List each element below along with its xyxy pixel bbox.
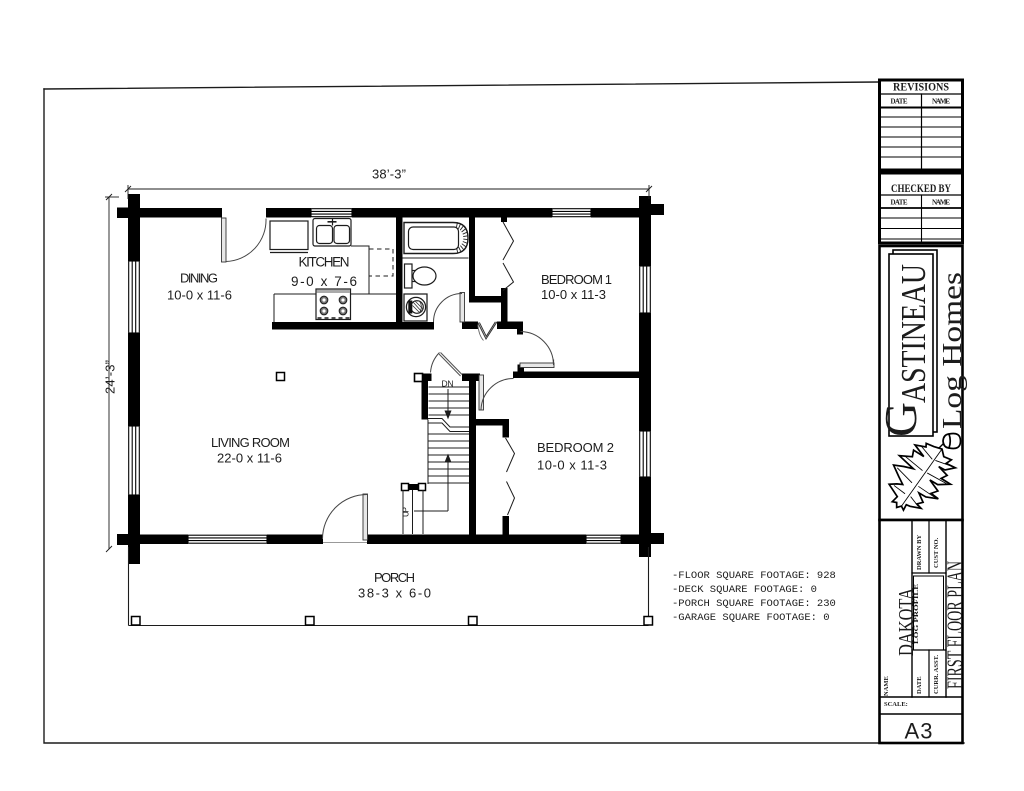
svg-text:DRAWN BY: DRAWN BY — [916, 534, 923, 570]
svg-text:10-0 x 11-3: 10-0 x 11-3 — [537, 458, 607, 473]
svg-text:NAME: NAME — [932, 199, 950, 207]
svg-text:DATE: DATE — [916, 676, 923, 694]
svg-text:DATE: DATE — [891, 199, 908, 207]
svg-text:LIVING ROOM: LIVING ROOM — [211, 435, 290, 450]
svg-text:-FLOOR SQUARE FOOTAGE: 928: -FLOOR SQUARE FOOTAGE: 928 — [672, 570, 836, 582]
svg-text:-GARAGE SQUARE FOOTAGE: 0: -GARAGE SQUARE FOOTAGE: 0 — [672, 612, 830, 624]
svg-text:G: G — [876, 402, 926, 437]
svg-text:FIRST FLOOR PLAN: FIRST FLOOR PLAN — [942, 561, 967, 689]
svg-text:22-0 x 11-6: 22-0 x 11-6 — [217, 451, 282, 466]
svg-text:DINING: DINING — [180, 271, 218, 286]
svg-text:NAME: NAME — [932, 98, 950, 106]
svg-text:DATE: DATE — [891, 98, 908, 106]
svg-text:CURR. ASST.: CURR. ASST. — [933, 655, 940, 694]
svg-text:REVISIONS: REVISIONS — [893, 82, 949, 94]
svg-text:-PORCH SQUARE FOOTAGE: 230: -PORCH SQUARE FOOTAGE: 230 — [672, 598, 836, 610]
svg-text:10-0 x 11-3: 10-0 x 11-3 — [541, 287, 606, 302]
svg-text:NAME: NAME — [883, 676, 890, 696]
svg-text:ASTINEAU: ASTINEAU — [894, 264, 933, 403]
svg-text:UP: UP — [402, 507, 411, 517]
svg-text:A3: A3 — [905, 719, 934, 744]
svg-text:-DECK SQUARE FOOTAGE: 0: -DECK SQUARE FOOTAGE: 0 — [672, 584, 817, 596]
svg-text:Log Homes: Log Homes — [937, 272, 967, 429]
svg-text:LOG PROFILE: LOG PROFILE — [914, 584, 920, 644]
svg-text:DN: DN — [442, 379, 454, 389]
svg-text:24’-3”: 24’-3” — [103, 360, 118, 394]
svg-text:SCALE:: SCALE: — [884, 701, 908, 708]
svg-text:KITCHEN: KITCHEN — [299, 255, 350, 270]
svg-text:CUST NO.: CUST NO. — [933, 537, 940, 568]
svg-text:BEDROOM 1: BEDROOM 1 — [541, 272, 612, 287]
svg-text:38’-3”: 38’-3” — [372, 167, 406, 182]
svg-text:BEDROOM 2: BEDROOM 2 — [537, 440, 614, 455]
svg-text:10-0 x 11-6: 10-0 x 11-6 — [167, 288, 232, 303]
svg-text:PORCH: PORCH — [374, 570, 415, 585]
svg-text:9-0 x 7-6: 9-0 x 7-6 — [291, 274, 357, 289]
svg-text:CHECKED BY: CHECKED BY — [891, 181, 951, 195]
